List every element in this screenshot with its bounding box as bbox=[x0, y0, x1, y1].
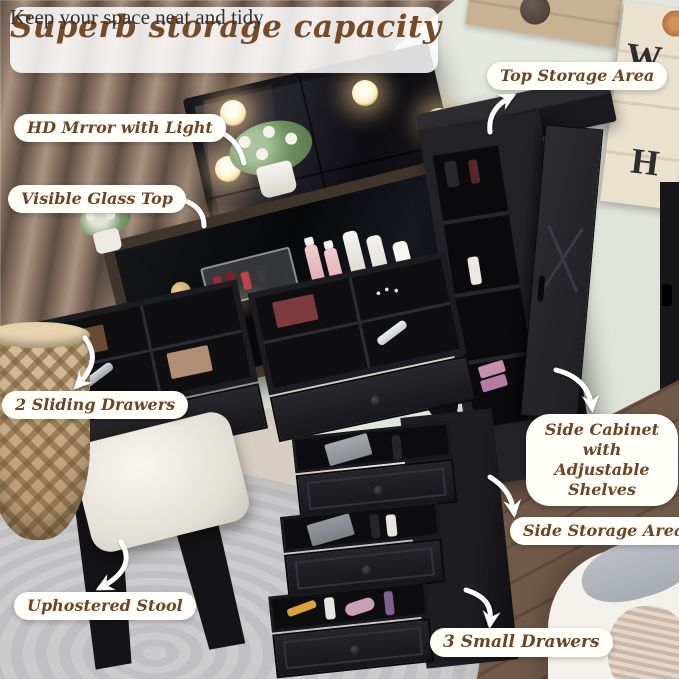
callout-stool: Uphostered Stool bbox=[14, 592, 196, 620]
arrow-side-cabinet bbox=[556, 370, 592, 408]
arrow-top-storage bbox=[490, 96, 512, 132]
callout-side-cabinet: Side Cabinet with Adjustable Shelves bbox=[526, 414, 678, 506]
callout-side-storage: Side Storage Area bbox=[510, 517, 679, 545]
callout-small-drawers: 3 Small Drawers bbox=[430, 628, 613, 657]
title-banner: Superb storage capacity Keep your space … bbox=[10, 7, 438, 73]
arrow-side-storage bbox=[490, 477, 514, 513]
arrow-small-drawers bbox=[466, 590, 490, 624]
callout-hd-mirror: HD Mrror with Light bbox=[14, 114, 226, 142]
callout-top-storage: Top Storage Area bbox=[487, 62, 667, 90]
callout-sliding-drawers: 2 Sliding Drawers bbox=[2, 391, 188, 419]
callout-glass-top: Visible Glass Top bbox=[8, 185, 186, 213]
product-photo-scene: W H bbox=[0, 0, 679, 679]
arrow-sliding-drawers bbox=[77, 338, 92, 386]
callout-arrows bbox=[0, 0, 679, 679]
arrow-stool bbox=[100, 542, 126, 588]
page-subtitle: Keep your space neat and tidy bbox=[10, 5, 264, 30]
